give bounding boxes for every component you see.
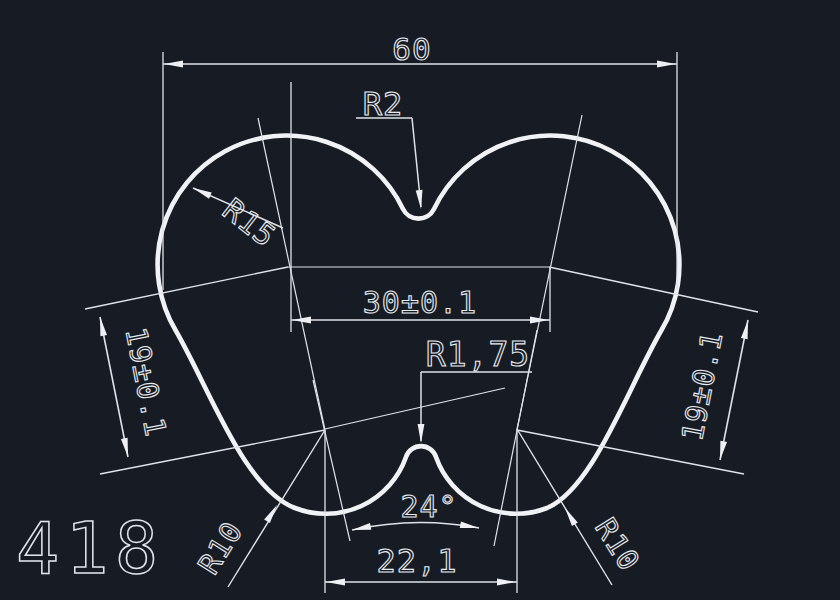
arrow-221-right [497, 579, 516, 586]
arrow-r10-left [264, 505, 277, 523]
dim-60-text: 60 [392, 31, 431, 67]
arrow-19-right-bottom [720, 441, 727, 460]
extline-19-right-bottom [517, 430, 744, 474]
extline-19-left-bottom [100, 430, 325, 474]
arrow-19-right-top [741, 320, 748, 339]
dim-30-text: 30±0.1 [363, 285, 477, 320]
arrow-19-left-top [100, 317, 107, 336]
dim-19-right-text: 19±0.1 [675, 328, 730, 443]
dim-r175-text: R1,75 [426, 335, 530, 374]
construction-diagonal-mid [325, 388, 505, 429]
arrow-r15 [193, 188, 212, 199]
arrow-24-right [460, 521, 479, 528]
arrow-24-left [352, 523, 371, 530]
dim-221-text: 22,1 [376, 542, 457, 580]
dim-r15-text: R15 [216, 191, 283, 254]
extline-19-left-top [85, 267, 288, 309]
arrow-19-left-bottom [121, 438, 128, 457]
extline-19-right-top [549, 267, 758, 312]
arrow-60-right [657, 61, 676, 68]
cad-viewport[interactable]: 60 R2 R15 30±0.1 R1,75 19±0.1 19±0.1 24°… [0, 0, 840, 600]
sheet-number: 418 [16, 506, 164, 590]
dim-24deg-text: 24° [400, 489, 457, 524]
dim-19-left-text: 19±0.1 [119, 324, 174, 439]
arrow-60-left [164, 61, 183, 68]
arrow-221-left [326, 579, 345, 586]
dim-r2-text: R2 [363, 85, 404, 123]
arrow-r175 [418, 424, 425, 443]
construction-angle-leg-left [313, 380, 350, 541]
dim-r10-right-text: R10 [588, 512, 646, 577]
dim-r10-left-text: R10 [191, 515, 249, 580]
cad-canvas[interactable]: 60 R2 R15 30±0.1 R1,75 19±0.1 19±0.1 24°… [0, 0, 840, 600]
arrow-r10-right [565, 508, 578, 526]
